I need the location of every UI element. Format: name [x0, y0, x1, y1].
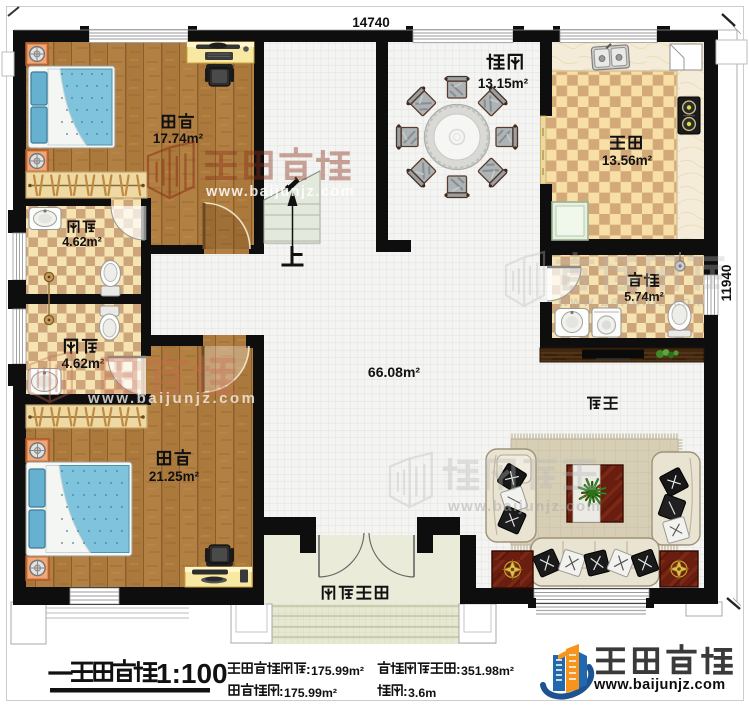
svg-text:4.62m²: 4.62m²	[62, 356, 105, 371]
svg-text::: :	[306, 661, 311, 677]
svg-text::: :	[456, 661, 461, 677]
svg-text:13.15m²: 13.15m²	[478, 76, 529, 91]
svg-text:13.56m²: 13.56m²	[602, 153, 653, 168]
svg-text:1:100: 1:100	[156, 658, 228, 689]
svg-text:66.08m²: 66.08m²	[368, 364, 420, 380]
svg-text:11940: 11940	[719, 265, 734, 302]
svg-text:3.6m: 3.6m	[408, 686, 436, 700]
svg-text:175.99m²: 175.99m²	[284, 686, 337, 700]
svg-text:www.baijunjz.com: www.baijunjz.com	[205, 184, 355, 200]
svg-text:www.baijunjz.com: www.baijunjz.com	[593, 677, 726, 693]
svg-text:351.98m²: 351.98m²	[461, 664, 514, 678]
svg-text:4.62m²: 4.62m²	[62, 235, 102, 249]
svg-text:www.baijunjz.com: www.baijunjz.com	[557, 294, 707, 309]
svg-text::: :	[279, 683, 284, 699]
svg-text:www.baijunjz.com: www.baijunjz.com	[87, 390, 257, 407]
svg-text:www.baijunjz.com: www.baijunjz.com	[447, 498, 601, 515]
svg-text:21.25m²: 21.25m²	[149, 469, 200, 484]
svg-text:175.99m²: 175.99m²	[311, 664, 364, 678]
svg-text::: :	[403, 683, 408, 699]
svg-text:14740: 14740	[352, 15, 390, 30]
svg-text:17.74m²: 17.74m²	[153, 131, 204, 146]
